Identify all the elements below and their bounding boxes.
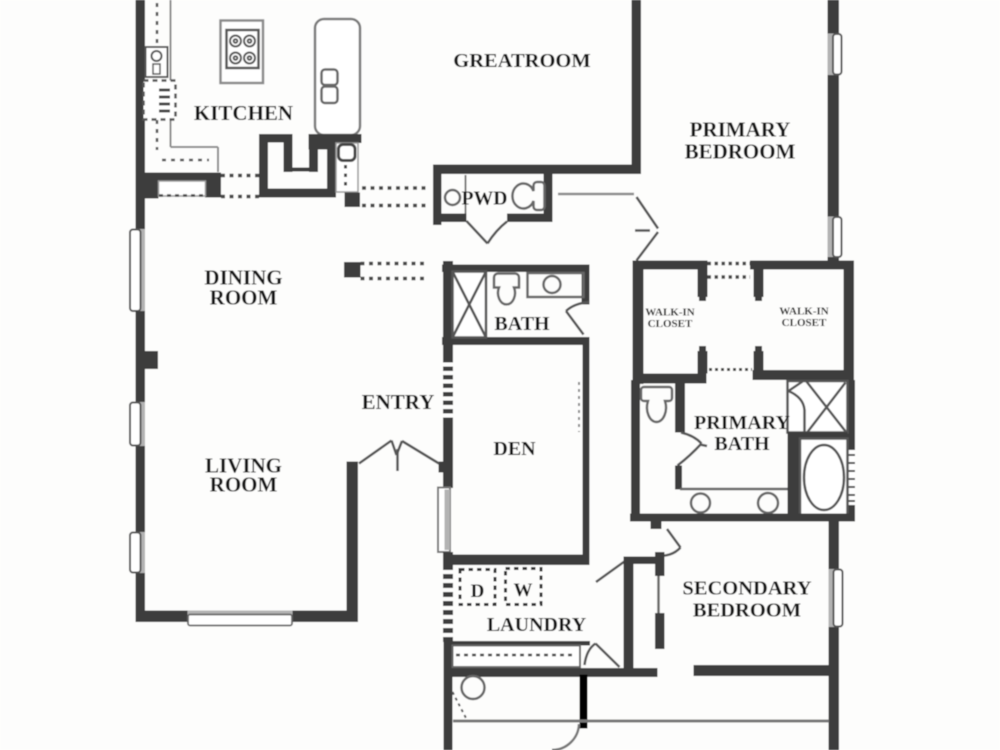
svg-text:ROOM: ROOM (210, 286, 278, 310)
svg-text:ENTRY: ENTRY (362, 390, 435, 414)
svg-text:PWD: PWD (462, 188, 508, 210)
svg-text:LAUNDRY: LAUNDRY (487, 614, 587, 636)
svg-text:GREATROOM: GREATROOM (453, 50, 590, 72)
svg-text:PRIMARY: PRIMARY (690, 118, 791, 142)
svg-text:ROOM: ROOM (210, 473, 278, 497)
svg-text:WALK-IN: WALK-IN (779, 306, 829, 318)
svg-text:WALK-IN: WALK-IN (645, 307, 695, 319)
svg-text:SECONDARY: SECONDARY (682, 578, 811, 600)
svg-text:PRIMARY: PRIMARY (694, 412, 791, 434)
svg-text:CLOSET: CLOSET (782, 317, 827, 329)
svg-text:BEDROOM: BEDROOM (685, 140, 796, 164)
svg-text:BEDROOM: BEDROOM (693, 600, 801, 622)
svg-text:CLOSET: CLOSET (648, 318, 693, 330)
svg-text:BATH: BATH (714, 433, 770, 455)
svg-text:W: W (514, 580, 533, 601)
svg-text:KITCHEN: KITCHEN (194, 101, 293, 125)
svg-text:DEN: DEN (493, 438, 536, 460)
svg-text:BATH: BATH (494, 313, 550, 335)
svg-text:D: D (471, 581, 485, 602)
